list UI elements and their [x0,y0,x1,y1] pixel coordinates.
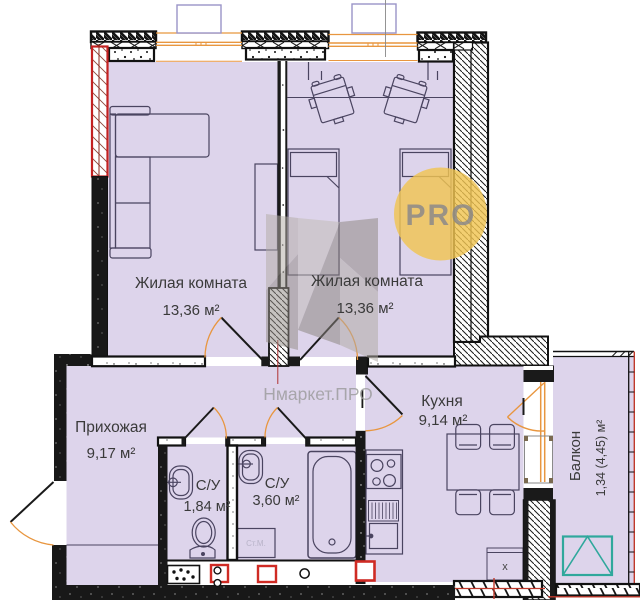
svg-text:Прихожая: Прихожая [75,419,147,436]
svg-text:Жилая комната: Жилая комната [311,273,423,290]
svg-text:PRO: PRO [405,199,476,232]
svg-text:х: х [502,561,508,573]
svg-text:3,60 м²: 3,60 м² [252,493,299,509]
svg-text:Ст.М.: Ст.М. [246,539,266,548]
svg-text:Балкон: Балкон [567,431,584,481]
svg-text:13,36 м²: 13,36 м² [162,302,219,319]
svg-text:9,17 м²: 9,17 м² [87,445,136,462]
svg-text:1,34 (4,45) м²: 1,34 (4,45) м² [594,420,608,497]
svg-text:13,36 м²: 13,36 м² [336,300,393,317]
svg-text:С/У: С/У [265,475,290,492]
svg-text:Жилая комната: Жилая комната [135,275,247,292]
svg-text:Нмаркет.ПРО: Нмаркет.ПРО [263,384,373,404]
svg-text:9,14 м²: 9,14 м² [419,412,468,429]
svg-text:Кухня: Кухня [421,393,462,410]
svg-text:С/У: С/У [196,477,221,494]
svg-text:1,84 м²: 1,84 м² [183,499,230,515]
